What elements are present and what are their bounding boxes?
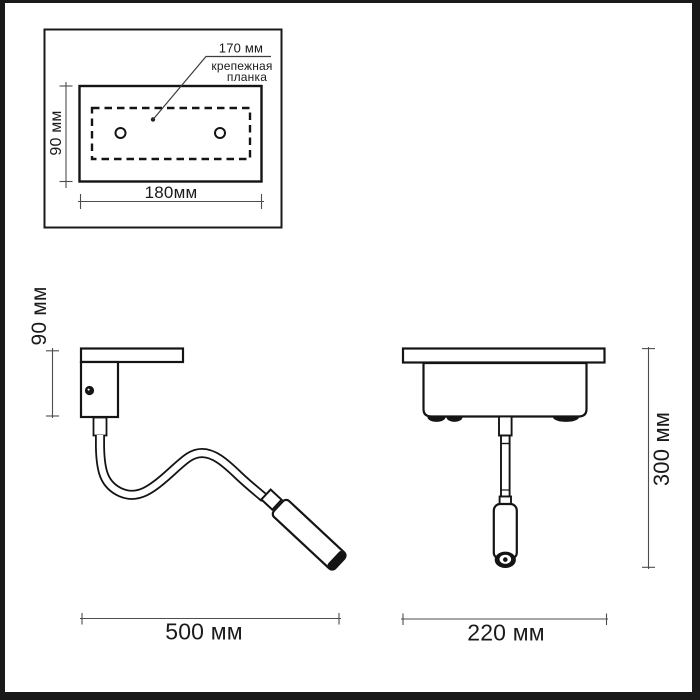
diagram-linework	[0, 0, 700, 700]
front-body	[424, 363, 587, 417]
inset-width-label: 180мм	[145, 183, 198, 203]
lamp-dimension-diagram: 170 мм крепежная планка 90 мм 180мм 90 м…	[0, 0, 700, 700]
hole-spacing-label: 170 мм	[219, 41, 263, 56]
mounting-hole-left	[116, 128, 126, 138]
front-head-connector	[500, 497, 511, 505]
side-gooseneck-outer	[100, 435, 265, 498]
side-plate	[81, 349, 183, 363]
front-width-label: 220 мм	[467, 620, 545, 647]
side-screw-highlight	[88, 389, 90, 391]
inset-height-label: 90 мм	[48, 110, 66, 155]
plate-outline	[80, 86, 262, 182]
side-lamp-head	[258, 486, 347, 571]
front-neck-stem	[499, 417, 512, 436]
front-plate	[403, 349, 605, 363]
side-height-dimension	[46, 348, 59, 418]
side-neck-stem	[94, 418, 107, 436]
front-height-label: 300 мм	[649, 412, 675, 486]
front-neck-tube	[501, 436, 510, 497]
mounting-bar-label-line2: планка	[227, 70, 267, 84]
side-screw	[85, 386, 94, 395]
side-height-label: 90 мм	[28, 286, 52, 345]
front-view-drawing	[401, 347, 655, 625]
front-head-cylinder	[494, 504, 517, 559]
side-view-drawing	[46, 348, 347, 625]
front-lens-center	[503, 557, 508, 562]
mounting-hole-right	[215, 128, 225, 138]
side-width-label: 500 мм	[165, 619, 243, 646]
